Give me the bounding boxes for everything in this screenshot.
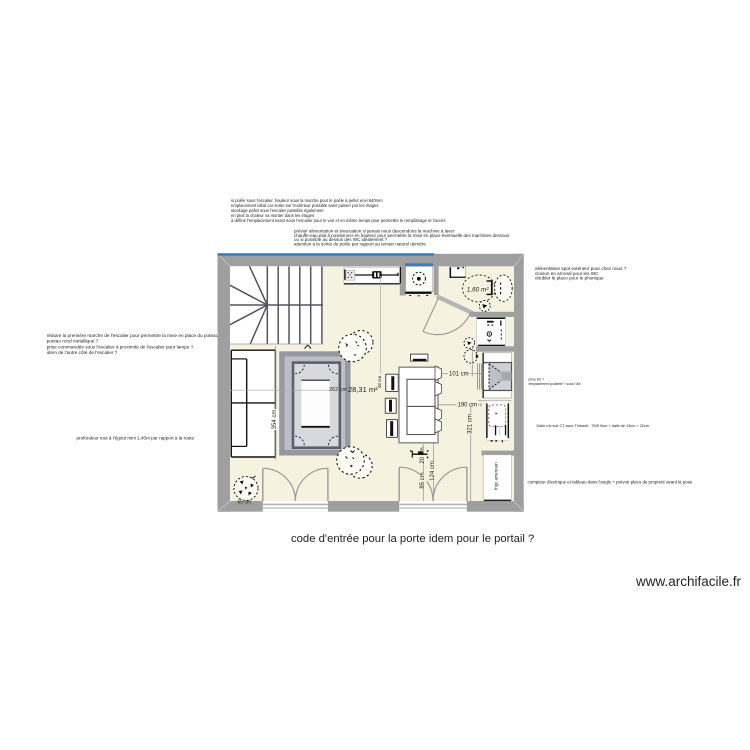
- svg-text:65 cm: 65 cm: [238, 500, 252, 506]
- svg-text:compteur électrique et tableau: compteur électrique et tableau dans l'an…: [528, 480, 693, 485]
- svg-text:321 cm: 321 cm: [468, 414, 474, 434]
- svg-text:20 cm: 20 cm: [420, 447, 426, 463]
- svg-text:idem de l'autre côté de l'esca: idem de l'autre côté de l'escalier ?: [47, 350, 118, 355]
- svg-text:Dalle rdc suit CT avec Thibaul: Dalle rdc suit CT avec Thibault : TMS 8c…: [537, 424, 649, 428]
- svg-text:attention à la sortie du poêle: attention à la sortie du poêle par rappo…: [294, 241, 426, 246]
- svg-text:101 cm: 101 cm: [449, 371, 469, 377]
- svg-text:profondeur tout à l'égout mini: profondeur tout à l'égout mini 1,40m par…: [77, 436, 195, 441]
- svg-text:à définir l'emplacement exact: à définir l'emplacement exact sous l'esc…: [231, 218, 445, 223]
- svg-text:www.archifacile.fr: www.archifacile.fr: [635, 574, 742, 589]
- svg-text:frigo américain: frigo américain: [494, 462, 499, 490]
- svg-text:354 cm: 354 cm: [272, 410, 278, 430]
- svg-text:262 cm: 262 cm: [329, 387, 347, 393]
- svg-text:85 cm: 85 cm: [420, 472, 426, 488]
- svg-text:code d'entrée pour la porte i: code d'entrée pour la porte idem pour le…: [291, 533, 534, 545]
- svg-text:prise ilot ?: prise ilot ?: [529, 378, 545, 382]
- svg-text:réduire la première marche de: réduire la première marche de l'escalier…: [47, 333, 219, 338]
- svg-text:48 cm: 48 cm: [377, 376, 382, 389]
- svg-text:prise commandée sous l'escalie: prise commandée sous l'escalier à proxim…: [47, 344, 194, 349]
- svg-text:190 cm: 190 cm: [458, 403, 478, 409]
- svg-text:doubler le placo pour le phoni: doubler le placo pour le phonique: [535, 276, 604, 281]
- svg-text:poteau rond métallique ?: poteau rond métallique ?: [47, 339, 99, 344]
- svg-text:28,31 m²: 28,31 m²: [348, 385, 378, 394]
- svg-text:124 cm: 124 cm: [430, 461, 436, 481]
- svg-text:1,60 m²: 1,60 m²: [467, 286, 490, 293]
- svg-text:emplacement poubelle ? sous l': emplacement poubelle ? sous l'îlot: [529, 382, 581, 386]
